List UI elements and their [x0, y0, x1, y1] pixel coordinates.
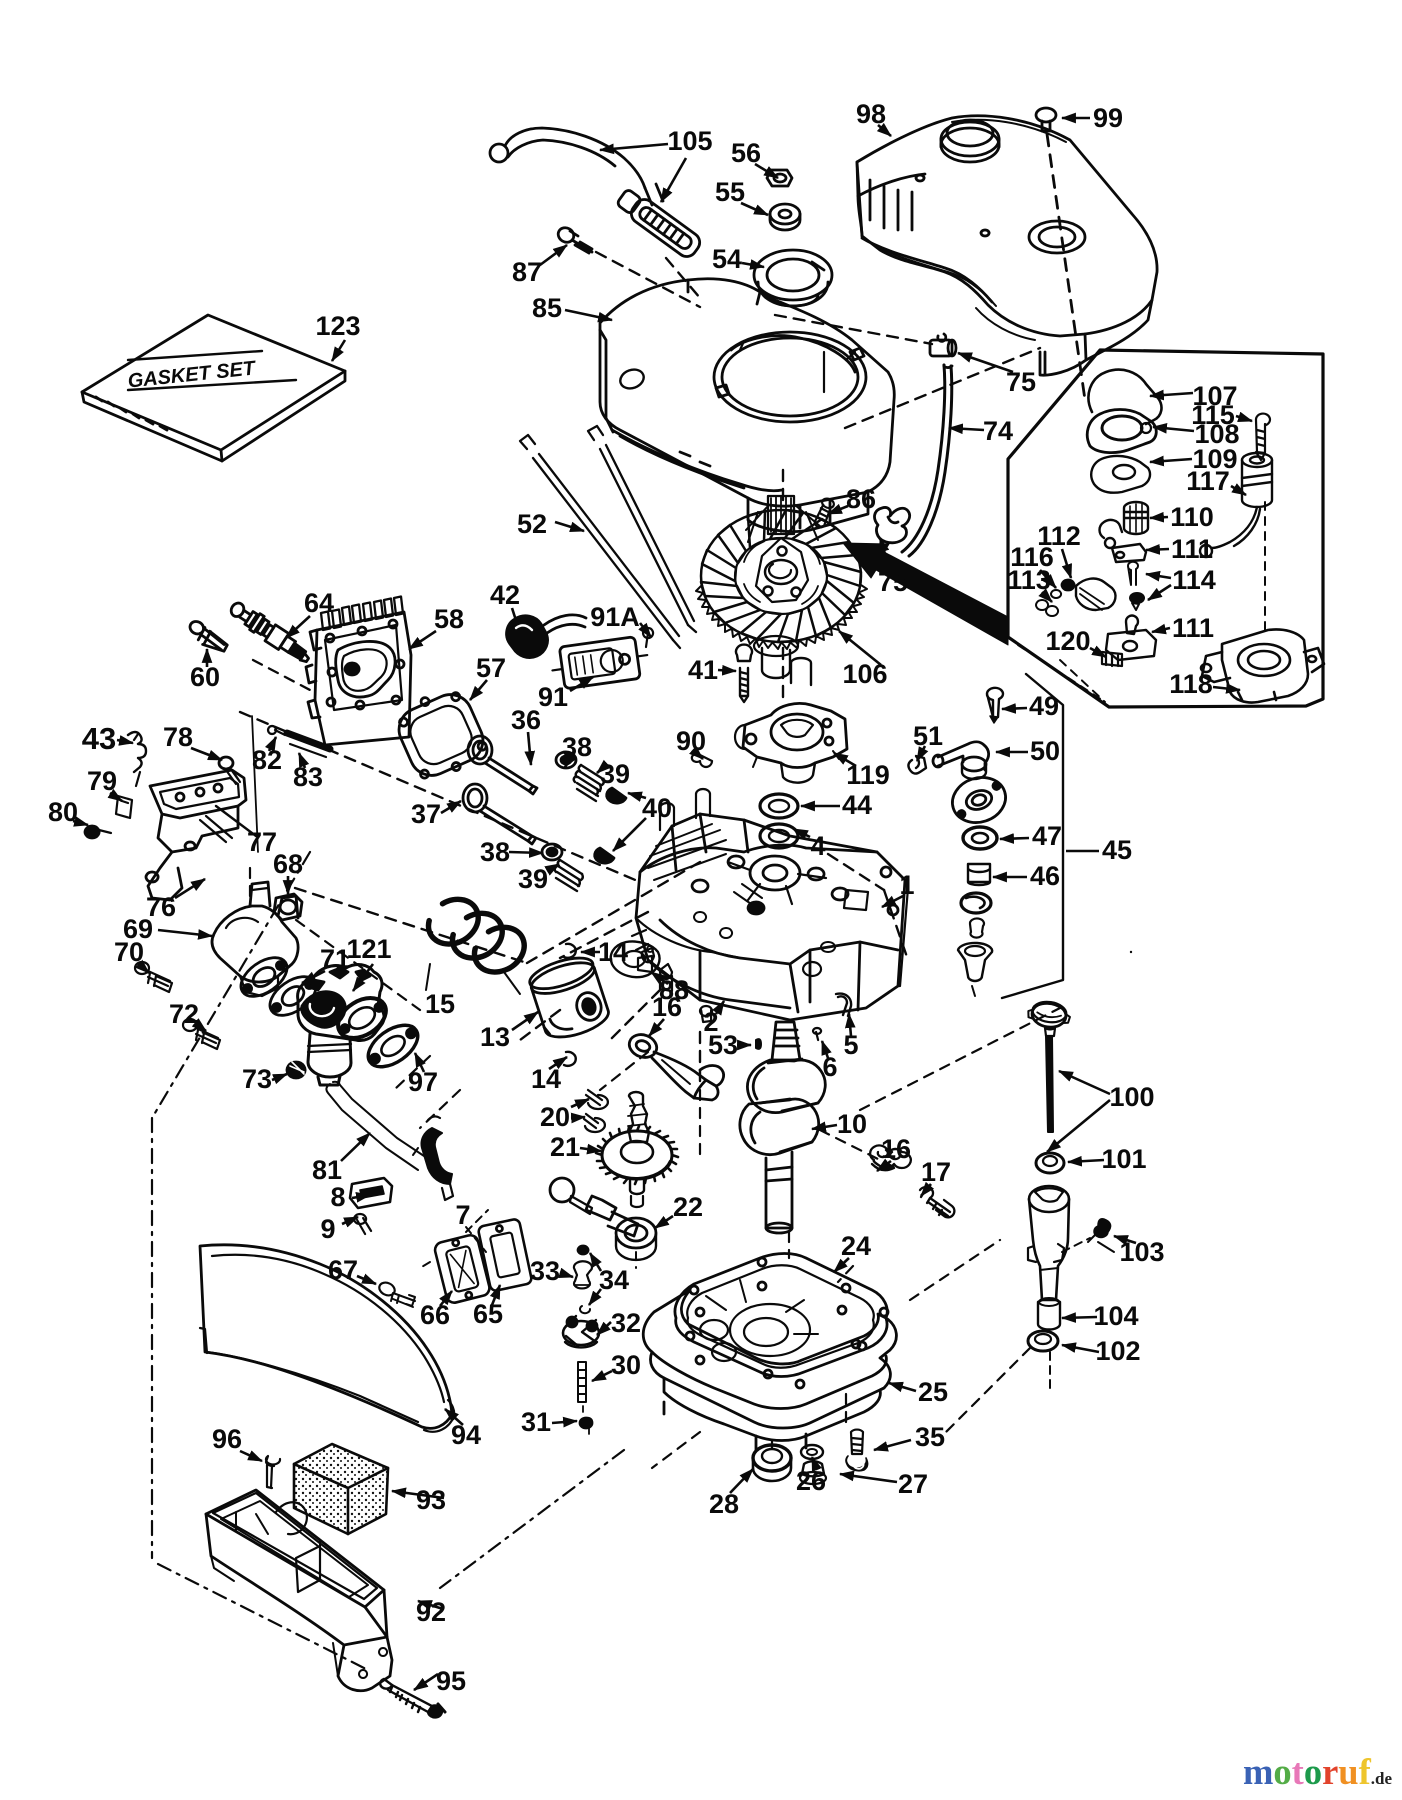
svg-text:97: 97 [408, 1067, 438, 1097]
svg-text:66: 66 [420, 1300, 450, 1330]
svg-text:98: 98 [856, 99, 886, 129]
svg-text:30: 30 [611, 1350, 641, 1380]
svg-text:16: 16 [881, 1134, 911, 1164]
svg-text:103: 103 [1119, 1237, 1164, 1267]
svg-text:67: 67 [328, 1255, 358, 1285]
svg-text:106: 106 [842, 659, 887, 689]
svg-text:39: 39 [600, 759, 630, 789]
svg-text:90: 90 [676, 726, 706, 756]
svg-text:86: 86 [846, 484, 876, 514]
svg-text:80: 80 [48, 797, 78, 827]
svg-text:37: 37 [411, 799, 441, 829]
svg-text:15: 15 [425, 989, 455, 1019]
svg-text:17: 17 [921, 1157, 951, 1187]
svg-text:14: 14 [531, 1064, 561, 1094]
svg-text:74: 74 [983, 416, 1013, 446]
svg-text:60: 60 [190, 662, 220, 692]
svg-text:46: 46 [1030, 861, 1060, 891]
svg-text:111: 111 [1172, 613, 1214, 643]
svg-text:38: 38 [562, 732, 592, 762]
svg-text:70: 70 [114, 937, 144, 967]
svg-text:45: 45 [1102, 835, 1132, 865]
svg-text:44: 44 [842, 790, 872, 820]
svg-text:101: 101 [1101, 1144, 1146, 1174]
svg-text:72: 72 [169, 999, 199, 1029]
svg-text:65: 65 [473, 1299, 503, 1329]
svg-text:42: 42 [490, 580, 520, 610]
svg-text:95: 95 [436, 1666, 466, 1696]
svg-text:25: 25 [918, 1377, 948, 1407]
svg-text:87: 87 [512, 257, 542, 287]
svg-text:102: 102 [1095, 1336, 1140, 1366]
svg-text:28: 28 [709, 1489, 739, 1519]
svg-text:92: 92 [416, 1597, 446, 1627]
svg-text:118: 118 [1169, 669, 1213, 699]
svg-text:78: 78 [163, 722, 193, 752]
svg-text:75: 75 [1006, 367, 1036, 397]
svg-text:100: 100 [1109, 1082, 1154, 1112]
svg-text:51: 51 [913, 721, 943, 751]
svg-text:123: 123 [315, 311, 360, 341]
svg-text:10: 10 [837, 1109, 867, 1139]
svg-text:4: 4 [810, 831, 825, 861]
svg-text:111: 111 [1171, 534, 1213, 564]
svg-text:82: 82 [252, 745, 282, 775]
svg-text:20: 20 [540, 1102, 570, 1132]
svg-text:50: 50 [1030, 736, 1060, 766]
svg-text:7: 7 [455, 1200, 470, 1230]
svg-text:83: 83 [293, 762, 323, 792]
svg-text:94: 94 [451, 1420, 481, 1450]
svg-text:49: 49 [1029, 691, 1059, 721]
svg-text:91: 91 [538, 682, 568, 712]
svg-text:38: 38 [480, 837, 510, 867]
svg-text:81: 81 [312, 1155, 342, 1185]
svg-text:43: 43 [82, 721, 116, 756]
svg-text:52: 52 [517, 509, 547, 539]
svg-text:26: 26 [796, 1466, 826, 1496]
svg-text:54: 54 [712, 244, 742, 274]
svg-text:53: 53 [708, 1030, 738, 1060]
svg-text:105: 105 [667, 126, 712, 156]
svg-text:73: 73 [242, 1064, 272, 1094]
svg-text:110: 110 [1170, 502, 1214, 532]
svg-text:93: 93 [416, 1485, 446, 1515]
svg-text:96: 96 [212, 1424, 242, 1454]
svg-text:21: 21 [550, 1132, 580, 1162]
svg-text:85: 85 [532, 293, 562, 323]
svg-text:14: 14 [598, 937, 628, 967]
svg-text:39: 39 [518, 864, 548, 894]
svg-text:24: 24 [841, 1231, 871, 1261]
svg-text:1: 1 [899, 870, 914, 900]
svg-text:104: 104 [1093, 1301, 1138, 1331]
svg-text:121: 121 [346, 934, 391, 964]
svg-text:56: 56 [731, 138, 761, 168]
svg-text:9: 9 [320, 1214, 335, 1244]
svg-text:119: 119 [846, 760, 890, 790]
svg-text:117: 117 [1186, 466, 1230, 496]
svg-text:8: 8 [330, 1182, 345, 1212]
svg-text:57: 57 [476, 653, 506, 683]
svg-text:32: 32 [611, 1308, 641, 1338]
svg-text:58: 58 [434, 604, 464, 634]
svg-text:99: 99 [1093, 103, 1123, 133]
svg-text:motoruf.de: motoruf.de [1243, 1751, 1392, 1792]
svg-text:68: 68 [273, 849, 303, 879]
svg-text:36: 36 [511, 705, 541, 735]
svg-text:120: 120 [1045, 626, 1090, 656]
svg-text:75: 75 [878, 567, 908, 597]
svg-text:13: 13 [480, 1022, 510, 1052]
svg-text:16: 16 [652, 992, 682, 1022]
svg-text:79: 79 [87, 766, 117, 796]
svg-text:91A: 91A [590, 602, 640, 632]
svg-text:5: 5 [843, 1030, 858, 1060]
svg-text:40: 40 [642, 793, 672, 823]
svg-text:114: 114 [1172, 565, 1216, 595]
svg-text:6: 6 [822, 1052, 837, 1082]
svg-text:27: 27 [898, 1469, 928, 1499]
svg-text:47: 47 [1032, 821, 1062, 851]
svg-text:41: 41 [688, 655, 718, 685]
svg-text:31: 31 [521, 1407, 551, 1437]
svg-text:113: 113 [1007, 565, 1051, 595]
svg-text:35: 35 [915, 1422, 945, 1452]
svg-text:33: 33 [530, 1256, 560, 1286]
svg-text:22: 22 [673, 1192, 703, 1222]
svg-text:64: 64 [304, 588, 334, 618]
svg-text:34: 34 [599, 1265, 629, 1295]
svg-text:55: 55 [715, 177, 745, 207]
